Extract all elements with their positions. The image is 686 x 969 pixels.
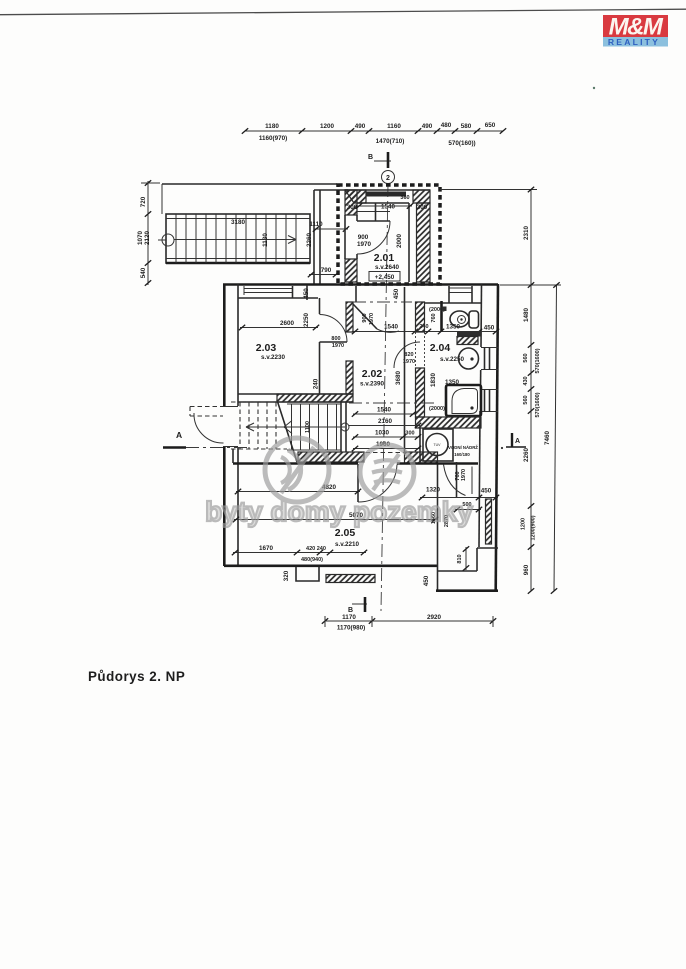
svg-text:2310: 2310 (523, 226, 530, 241)
svg-text:2260: 2260 (523, 448, 530, 463)
svg-text:2600: 2600 (280, 320, 295, 327)
svg-text:1200: 1200 (320, 123, 335, 130)
svg-text:560: 560 (523, 353, 529, 362)
svg-text:300: 300 (347, 204, 358, 211)
svg-text:450: 450 (423, 575, 430, 586)
svg-text:1970: 1970 (332, 343, 344, 349)
svg-text:1160: 1160 (387, 123, 401, 130)
svg-text:570(160)): 570(160)) (448, 140, 475, 147)
svg-text:B: B (368, 154, 373, 161)
svg-text:900: 900 (358, 234, 369, 241)
svg-text:1180: 1180 (265, 123, 279, 130)
svg-text:3680: 3680 (395, 371, 402, 386)
svg-text:240: 240 (313, 378, 320, 389)
svg-text:s.v.2390: s.v.2390 (360, 381, 385, 388)
svg-text:800: 800 (331, 336, 340, 342)
svg-text:810: 810 (457, 554, 463, 563)
svg-text:160/180: 160/180 (454, 452, 470, 457)
svg-text:1970: 1970 (461, 469, 467, 481)
svg-text:TUV: TUV (434, 443, 442, 447)
svg-text:2.05: 2.05 (335, 527, 356, 539)
svg-text:560: 560 (523, 395, 529, 404)
svg-text:+2,450: +2,450 (375, 274, 395, 281)
svg-text:1070: 1070 (137, 231, 144, 246)
svg-text:1540: 1540 (381, 204, 396, 211)
svg-text:650: 650 (485, 122, 496, 129)
svg-text:1170: 1170 (342, 614, 356, 621)
svg-text:300: 300 (417, 204, 428, 211)
svg-text:1110: 1110 (309, 221, 323, 228)
svg-text:s.v.2250: s.v.2250 (440, 356, 465, 363)
svg-text:1350: 1350 (445, 379, 460, 386)
svg-text:1200(900): 1200(900) (531, 515, 537, 540)
svg-text:570(1600): 570(1600) (535, 348, 541, 373)
svg-text:B: B (348, 607, 353, 614)
svg-text:1540: 1540 (377, 407, 392, 414)
svg-text:1200: 1200 (521, 518, 527, 530)
svg-text:570(1600): 570(1600) (535, 392, 541, 417)
svg-text:960: 960 (523, 564, 530, 575)
svg-text:2920: 2920 (427, 614, 442, 621)
svg-text:1470(710): 1470(710) (376, 138, 405, 145)
svg-text:1320: 1320 (426, 487, 441, 494)
svg-text:Půdorys 2. NP: Půdorys 2. NP (88, 669, 185, 684)
svg-text:2120: 2120 (144, 231, 151, 246)
svg-text:2.01: 2.01 (374, 252, 395, 264)
svg-text:720: 720 (140, 196, 147, 207)
svg-text:490: 490 (355, 123, 366, 130)
svg-text:1480: 1480 (523, 308, 530, 323)
svg-text:1970: 1970 (357, 241, 372, 248)
svg-text:790: 790 (321, 267, 332, 274)
svg-text:s.v.2640: s.v.2640 (375, 264, 400, 271)
svg-text:430: 430 (523, 376, 529, 385)
svg-text:450: 450 (303, 288, 310, 299)
svg-text:1030: 1030 (375, 430, 390, 437)
svg-text:1170(980): 1170(980) (337, 625, 365, 632)
svg-text:490: 490 (422, 123, 433, 130)
svg-text:(2000): (2000) (429, 406, 445, 412)
svg-text:s.v.2210: s.v.2210 (335, 541, 360, 548)
svg-text:2160: 2160 (378, 418, 393, 425)
svg-text:2000: 2000 (396, 234, 403, 249)
svg-text:420 240: 420 240 (306, 546, 326, 552)
svg-text:760: 760 (431, 313, 437, 322)
svg-text:540: 540 (140, 267, 147, 278)
svg-text:VODNÍ NÁDRŽ: VODNÍ NÁDRŽ (448, 445, 478, 450)
svg-text:2: 2 (386, 175, 390, 182)
svg-text:360: 360 (400, 195, 409, 201)
svg-text:1970: 1970 (369, 313, 375, 325)
svg-text:A: A (515, 438, 520, 445)
svg-text:320: 320 (283, 570, 290, 581)
svg-text:900: 900 (362, 313, 368, 322)
svg-text:480: 480 (441, 122, 452, 129)
svg-text:450: 450 (393, 288, 400, 299)
svg-text:450: 450 (484, 325, 495, 332)
svg-text:2260: 2260 (306, 233, 313, 248)
svg-text:s.v.2230: s.v.2230 (261, 354, 286, 361)
svg-text:byty domy pozemky: byty domy pozemky (205, 496, 473, 527)
svg-text:1540: 1540 (384, 324, 399, 331)
svg-text:480(940): 480(940) (301, 557, 323, 563)
svg-text:1130: 1130 (262, 233, 269, 247)
svg-text:1670: 1670 (259, 545, 274, 552)
svg-text:300: 300 (405, 431, 414, 437)
svg-text:450: 450 (481, 488, 492, 495)
svg-text:580: 580 (461, 123, 472, 130)
svg-text:1830: 1830 (430, 373, 437, 388)
svg-text:2.03: 2.03 (256, 342, 277, 354)
svg-text:820: 820 (404, 352, 413, 358)
svg-text:2.02: 2.02 (362, 368, 383, 380)
svg-text:2250: 2250 (303, 313, 310, 328)
svg-text:REALITY: REALITY (608, 37, 660, 47)
svg-text:A: A (176, 430, 182, 440)
svg-text:7460: 7460 (544, 431, 551, 446)
svg-text:1160(970): 1160(970) (259, 135, 287, 142)
svg-text:2.04: 2.04 (430, 342, 451, 354)
svg-text:3180: 3180 (231, 219, 246, 226)
